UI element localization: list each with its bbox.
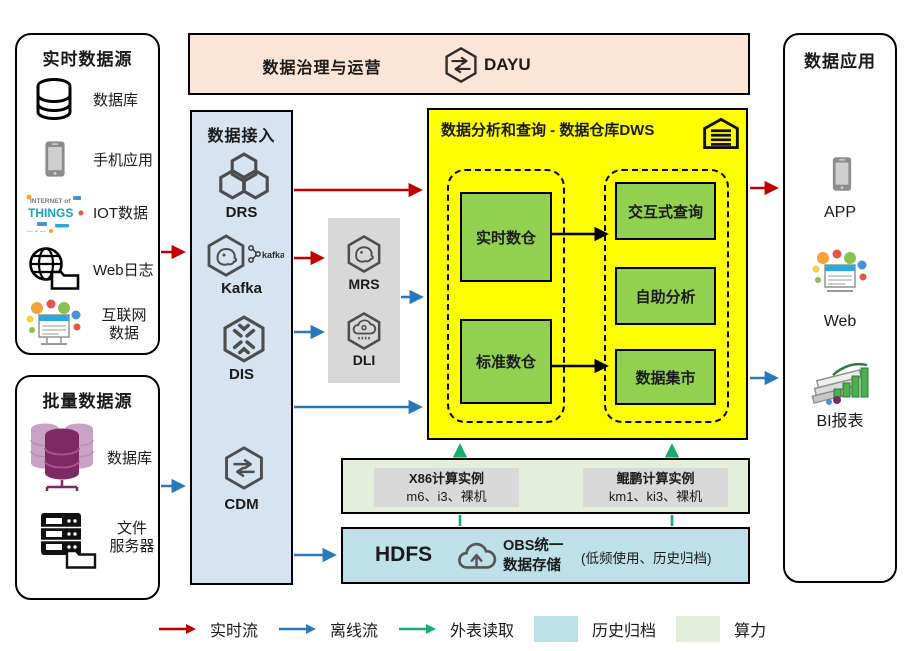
dayu-hexagon-icon	[442, 44, 480, 86]
processing-box: MRS DLI	[328, 218, 400, 383]
batch-item-label: 文件 服务器	[105, 520, 159, 556]
mobile-phone-icon	[35, 135, 75, 183]
x86-instance-box: X86计算实例 m6、i3、裸机	[374, 468, 519, 507]
bi-label: BI报表	[785, 412, 895, 431]
offline-flow-arrow-icon	[278, 622, 316, 636]
ingest-title: 数据接入	[192, 122, 291, 146]
dis-hexagon-icon	[219, 314, 269, 364]
mrs-hexagon-icon	[344, 233, 384, 275]
architecture-diagram: 实时数据源 数据库 手机应用 INTERNET of THINGS	[0, 0, 914, 651]
mrs-label: MRS	[328, 276, 400, 292]
realtime-item-label: Web日志	[93, 262, 154, 280]
internet-bubbles-icon	[25, 299, 85, 351]
svg-text:INTERNET of: INTERNET of	[30, 198, 71, 205]
module-data-mart: 数据集市	[615, 349, 716, 405]
realtime-item-label: IOT数据	[93, 205, 148, 223]
warehouse-icon	[701, 115, 741, 151]
bi-report-icon	[807, 353, 875, 407]
legend-compute-label: 算力	[734, 617, 766, 641]
cdm-label: CDM	[192, 496, 291, 513]
module-realtime-warehouse: 实时数仓	[460, 192, 552, 282]
dli-label: DLI	[328, 352, 400, 368]
apps-title: 数据应用	[785, 47, 895, 72]
batch-sources-title: 批量数据源	[17, 387, 158, 412]
apps-box: 数据应用 APP	[783, 33, 897, 583]
drs-label: DRS	[192, 204, 291, 221]
module-standard-warehouse: 标准数仓	[460, 319, 552, 404]
legend: 实时流 离线流 外表读取 历史归档 算力	[158, 610, 818, 648]
ingest-column: 数据接入 DRS kafka Kaf	[190, 110, 293, 585]
legend-offline-label: 离线流	[330, 617, 378, 641]
globe-folder-icon	[27, 245, 83, 291]
dws-box: 数据分析和查询 - 数据仓库DWS 实时数仓 标准数仓 交互式查询 自助分析 数…	[427, 108, 748, 440]
hdfs-label: HDFS	[375, 543, 432, 567]
realtime-item-label: 数据库	[93, 92, 138, 110]
obs-cloud-icon	[455, 536, 499, 576]
svg-text:THINGS: THINGS	[28, 206, 73, 220]
web-bubbles-icon	[811, 247, 871, 303]
module-self-analysis: 自助分析	[615, 267, 716, 325]
legend-external-label: 外表读取	[450, 617, 514, 641]
drs-hexagons-icon	[219, 152, 269, 202]
cdm-hexagon-icon	[221, 444, 267, 492]
iot-wordcloud-icon: INTERNET of THINGS — ⌁ —	[25, 191, 87, 235]
archive-swatch	[534, 616, 578, 642]
app-label: APP	[785, 203, 895, 222]
kafka-hexagon-icon: kafka	[204, 234, 284, 280]
svg-text:kafka: kafka	[262, 250, 284, 260]
app-phone-icon	[823, 150, 861, 198]
dli-hexagon-icon	[344, 310, 384, 352]
realtime-item-label: 互联网 数据	[93, 307, 155, 343]
realtime-flow-arrow-icon	[158, 622, 196, 636]
database-stack-icon	[27, 419, 97, 495]
batch-item-label: 数据库	[107, 450, 152, 468]
dayu-label: DAYU	[484, 55, 531, 75]
module-interactive-query: 交互式查询	[615, 182, 716, 240]
realtime-sources-box: 实时数据源 数据库 手机应用 INTERNET of THINGS	[15, 33, 160, 355]
compute-bar: X86计算实例 m6、i3、裸机 鲲鹏计算实例 km1、ki3、裸机	[341, 458, 750, 514]
compute-swatch	[676, 616, 720, 642]
kafka-label: Kafka	[192, 280, 291, 297]
obs-label: OBS统一 数据存储	[503, 537, 563, 576]
web-label: Web	[785, 312, 895, 331]
external-read-arrow-icon	[398, 622, 436, 636]
svg-text:— ⌁ —: — ⌁ —	[27, 229, 46, 235]
kunpeng-instance-box: 鲲鹏计算实例 km1、ki3、裸机	[583, 468, 728, 507]
storage-note: (低频使用、历史归档)	[581, 547, 712, 567]
batch-sources-box: 批量数据源 数据库	[15, 375, 160, 600]
storage-bar: HDFS OBS统一 数据存储 (低频使用、历史归档)	[341, 527, 750, 584]
dis-label: DIS	[192, 366, 291, 383]
legend-archive-label: 历史归档	[592, 617, 656, 641]
governance-title: 数据治理与运营	[252, 54, 392, 78]
file-server-icon	[37, 510, 99, 570]
governance-bar: 数据治理与运营 DAYU	[188, 33, 750, 95]
database-icon	[27, 77, 81, 125]
realtime-sources-title: 实时数据源	[17, 45, 158, 70]
realtime-item-label: 手机应用	[93, 152, 153, 170]
legend-realtime-label: 实时流	[210, 617, 258, 641]
dws-title: 数据分析和查询 - 数据仓库DWS	[441, 119, 654, 140]
